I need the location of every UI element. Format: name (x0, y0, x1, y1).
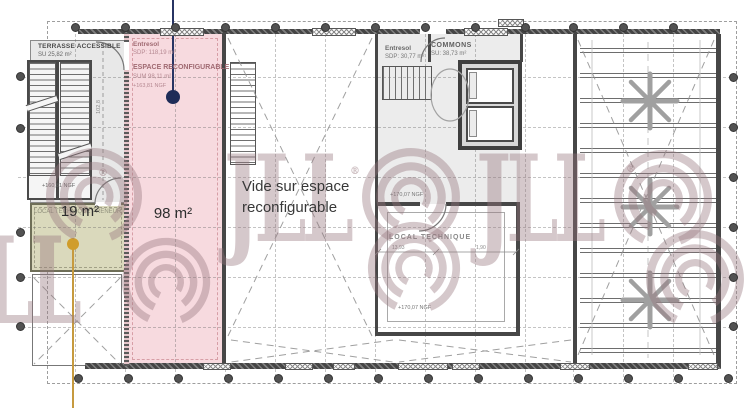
column-dot (16, 273, 25, 282)
southstrip-x2 (399, 340, 571, 362)
espace-ngf: +163,81 NGF (133, 83, 166, 89)
orange-marker-dot (67, 238, 79, 250)
column-dot (16, 72, 25, 81)
floor-plan: JLL JLL JLL ® ® ® TERRASSE ACCESSIBLE SU… (0, 0, 753, 408)
espace-title: ESPACE RECONFIGURABLE (133, 64, 229, 72)
vent-north-2 (312, 28, 356, 36)
column-dot (624, 374, 633, 383)
column-dot (524, 374, 533, 383)
column-dot (471, 23, 480, 32)
column-dot (669, 23, 678, 32)
column-dot (16, 322, 25, 331)
rightsection-diagonals (578, 40, 714, 355)
column-dot (124, 374, 133, 383)
column-dot (729, 123, 738, 132)
espace-su: SUM 98,11 m² (133, 74, 171, 81)
column-dot (729, 273, 738, 282)
vent-south-5 (452, 363, 480, 370)
espace-area-badge: 98 m² (138, 205, 208, 222)
dim-lt-right: 1,90 (476, 245, 486, 251)
elevator-panel-1 (469, 72, 477, 99)
column-dot (274, 374, 283, 383)
vent-south-2 (285, 363, 313, 370)
column-dot (121, 23, 130, 32)
vent-south-6 (560, 363, 590, 370)
column-dot (271, 23, 280, 32)
vent-north-1 (160, 28, 204, 36)
espace-level: Entresol (133, 41, 159, 48)
roof-star-symbols (623, 74, 677, 327)
espace-sdp: SDP: 118,19 m² (133, 50, 175, 57)
commons-title: COMMONS (431, 42, 472, 50)
dim-lt-width: 13,93 (392, 245, 405, 251)
commons-duct-circle (431, 69, 469, 121)
column-dot (521, 23, 530, 32)
local-preneur-area-badge: 19 m² (45, 203, 115, 220)
column-dot (224, 374, 233, 383)
column-dot (724, 374, 733, 383)
column-dot (371, 23, 380, 32)
terrasse-ngf: +160,81 NGF (42, 183, 75, 189)
column-dot (474, 374, 483, 383)
vide-label: Vide sur espace reconfigurable (242, 176, 360, 218)
column-dot (324, 374, 333, 383)
elevator-panel-2 (469, 110, 477, 137)
vent-south-3 (333, 363, 355, 370)
local-technique-title: LOCAL TECHNIQUE (389, 234, 471, 242)
column-dot (424, 374, 433, 383)
bottomleft-diagonals (34, 278, 120, 364)
column-dot (16, 124, 25, 133)
column-dot (374, 374, 383, 383)
vent-south-7 (688, 363, 718, 370)
column-dot (171, 23, 180, 32)
entresol-sdp: SDP: 30,77 m² (385, 54, 424, 61)
column-dot (174, 374, 183, 383)
navy-marker-dot (166, 90, 180, 104)
column-dot (569, 23, 578, 32)
column-dot (221, 23, 230, 32)
column-dot (729, 223, 738, 232)
column-dot (71, 23, 80, 32)
entresol-level: Entresol (385, 45, 411, 52)
lt-ngf-lower: +170,07 NGF (398, 305, 431, 311)
column-dot (574, 374, 583, 383)
terrasse-title: TERRASSE ACCESSIBLE (38, 43, 121, 50)
column-dot (421, 23, 430, 32)
lt-ngf-upper: +170,07 NGF (390, 192, 423, 198)
column-dot (729, 322, 738, 331)
terrasse-area: SU 25,82 m² (38, 52, 72, 59)
door-arc-olive (95, 178, 121, 204)
column-dot (74, 374, 83, 383)
column-dot (729, 173, 738, 182)
column-dot (729, 73, 738, 82)
door-arc-local-technique (419, 204, 446, 231)
vent-south-1 (203, 363, 231, 370)
column-dot (16, 228, 25, 237)
commons-su: SU: 38,73 m² (431, 51, 466, 58)
dim-terrasse-height: 102,8 (96, 100, 102, 114)
southstrip-x1 (231, 340, 393, 362)
column-dot (674, 374, 683, 383)
column-dot (619, 23, 628, 32)
column-dot (321, 23, 330, 32)
vent-south-4 (398, 363, 448, 370)
